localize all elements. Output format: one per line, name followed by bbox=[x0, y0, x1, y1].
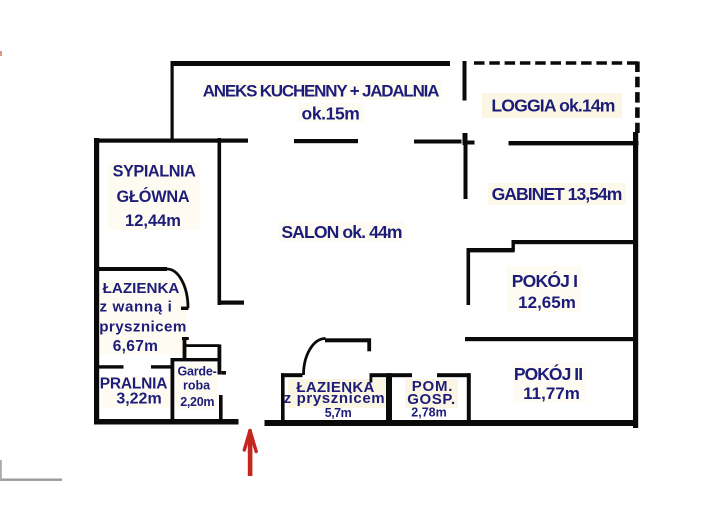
svg-text:GABINET 13,54m: GABINET 13,54m bbox=[492, 184, 622, 204]
svg-text:2,78m: 2,78m bbox=[411, 406, 446, 420]
svg-text:ŁAZIENKA: ŁAZIENKA bbox=[103, 280, 180, 297]
svg-text:z wanną i: z wanną i bbox=[100, 299, 173, 316]
svg-text:GŁÓWNA: GŁÓWNA bbox=[117, 187, 190, 206]
svg-text:ok.15m: ok.15m bbox=[302, 104, 360, 124]
svg-text:ANEKS KUCHENNY + JADALNIA: ANEKS KUCHENNY + JADALNIA bbox=[203, 82, 440, 101]
svg-text:SYPIALNIA: SYPIALNIA bbox=[113, 163, 196, 181]
svg-text:11,77m: 11,77m bbox=[523, 384, 580, 403]
svg-text:3,22m: 3,22m bbox=[116, 391, 161, 408]
svg-text:z prysznicem: z prysznicem bbox=[284, 390, 385, 407]
svg-text:6,67m: 6,67m bbox=[113, 338, 158, 355]
svg-text:LOGGIA ok.14m: LOGGIA ok.14m bbox=[491, 96, 614, 116]
svg-text:SALON ok. 44m: SALON ok. 44m bbox=[281, 222, 402, 242]
svg-text:roba: roba bbox=[183, 379, 211, 393]
svg-text:prysznicem: prysznicem bbox=[99, 319, 187, 336]
svg-text:POKÓJ II: POKÓJ II bbox=[514, 363, 582, 384]
svg-text:2,20m: 2,20m bbox=[180, 395, 214, 409]
svg-text:Garde-: Garde- bbox=[177, 365, 216, 379]
svg-text:12,44m: 12,44m bbox=[125, 212, 181, 230]
svg-text:POKÓJ I: POKÓJ I bbox=[512, 270, 577, 291]
svg-text:12,65m: 12,65m bbox=[518, 293, 576, 312]
svg-text:5,7m: 5,7m bbox=[325, 406, 352, 420]
